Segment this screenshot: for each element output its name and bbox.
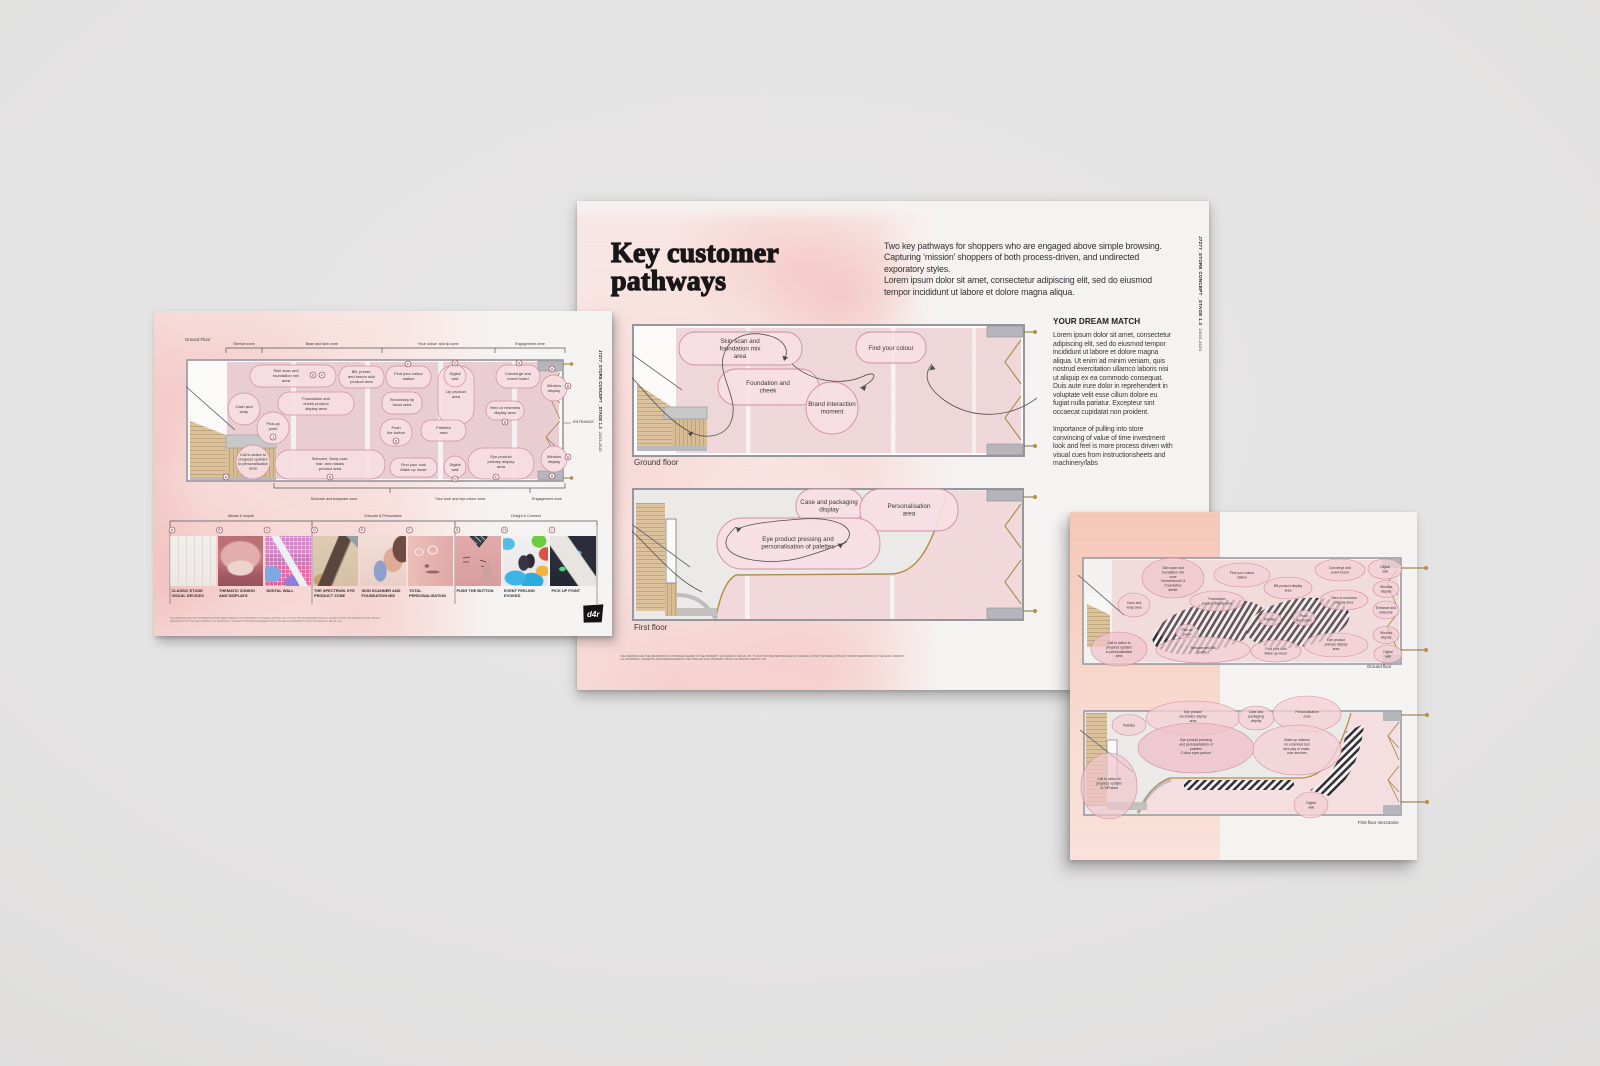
svg-text:product: product	[1197, 650, 1208, 654]
svg-text:Skincare and BB: Skincare and BB	[1190, 646, 1216, 650]
svg-text:‘Colour eyes parlour’: ‘Colour eyes parlour’	[1180, 751, 1211, 755]
svg-text:Find your colour: Find your colour	[1230, 571, 1255, 575]
svg-text:to personalisation: to personalisation	[1106, 650, 1133, 654]
svg-text:wrap area: wrap area	[1126, 605, 1141, 609]
svg-text:area: area	[1190, 719, 1197, 723]
svg-text:Skin scan and: Skin scan and	[1162, 566, 1183, 570]
svg-text:primary display: primary display	[1325, 642, 1348, 646]
svg-text:area: area	[734, 353, 747, 360]
svg-text:Hero or newness: Hero or newness	[1331, 596, 1357, 600]
svg-text:secondary display: secondary display	[1179, 714, 1206, 718]
svg-text:d4r: d4r	[587, 610, 600, 619]
svg-text:Brand interaction: Brand interaction	[808, 401, 856, 408]
svg-text:display: display	[1251, 719, 1262, 723]
svg-text:Make up muse’: Make up muse’	[1265, 651, 1288, 655]
svg-text:display area: display area	[1335, 600, 1353, 604]
svg-text:zone: zone	[1303, 714, 1310, 718]
svg-text:Foundation: Foundation	[1209, 597, 1226, 601]
svg-text:point: point	[1183, 632, 1190, 636]
svg-text:Personalisation: Personalisation	[1295, 710, 1318, 714]
svg-text:Skin scan and: Skin scan and	[720, 338, 760, 345]
svg-text:wall: wall	[1385, 654, 1391, 658]
svg-text:progress upstairs: progress upstairs	[1106, 645, 1132, 649]
svg-text:display: display	[819, 507, 839, 514]
svg-text:welcome: welcome	[1379, 610, 1392, 614]
svg-text:Push: Push	[1300, 614, 1308, 618]
svg-text:Foundation: Foundation	[1165, 584, 1182, 588]
svg-text:Window: Window	[1380, 631, 1393, 635]
svg-text:the button: the button	[1296, 618, 1311, 622]
svg-text:palettes: palettes	[1190, 747, 1202, 751]
svg-text:Pick up: Pick up	[1181, 628, 1192, 632]
svg-text:Eye product pressing and: Eye product pressing and	[762, 536, 834, 543]
svg-text:for extended test: for extended test	[1284, 742, 1309, 746]
svg-text:area: area	[1116, 654, 1123, 658]
svg-text:area: area	[903, 511, 916, 518]
svg-text:station: station	[1237, 575, 1247, 579]
svg-text:Palettes: Palettes	[1123, 723, 1136, 727]
svg-text:area: area	[1285, 588, 1292, 592]
svg-text:Eye product: Eye product	[1184, 710, 1202, 714]
svg-text:and play or make-: and play or make-	[1283, 747, 1310, 751]
svg-text:Case and: Case and	[1249, 710, 1264, 714]
svg-text:display: display	[1381, 635, 1392, 639]
svg-text:Call to action to: Call to action to	[1107, 641, 1130, 645]
svg-text:Digital: Digital	[1380, 565, 1390, 569]
svg-text:cheek: cheek	[760, 388, 778, 395]
svg-text:moment: moment	[821, 409, 844, 416]
svg-text:Eye product: Eye product	[1327, 638, 1345, 642]
svg-text:Palettes: Palettes	[1264, 617, 1277, 621]
svg-text:to VIP area: to VIP area	[1101, 786, 1118, 790]
svg-text:zone: zone	[1169, 575, 1176, 579]
svg-text:wall: wall	[1382, 569, 1388, 573]
svg-text:foundation mix: foundation mix	[1162, 570, 1184, 574]
svg-text:Entrance and: Entrance and	[1376, 606, 1396, 610]
svg-text:over services: over services	[1287, 751, 1307, 755]
svg-text:Personalisation: Personalisation	[887, 503, 931, 510]
svg-text:Call to action to: Call to action to	[1097, 777, 1120, 781]
svg-text:Foundation and: Foundation and	[746, 380, 790, 387]
svg-text:Window: Window	[1380, 585, 1393, 589]
svg-text:product display area: product display area	[1202, 601, 1233, 605]
svg-text:Find your colour: Find your colour	[868, 345, 913, 352]
svg-text:Digital: Digital	[1383, 650, 1393, 654]
svg-text:Find your look: Find your look	[1265, 647, 1287, 651]
svg-text:area: area	[1333, 647, 1340, 651]
svg-text:Case and packaging: Case and packaging	[800, 499, 858, 506]
svg-text:progress upstairs: progress upstairs	[1096, 781, 1122, 785]
svg-text:Make up stations: Make up stations	[1284, 738, 1310, 742]
svg-text:BB product display: BB product display	[1274, 584, 1303, 588]
svg-text:and personalisation of: and personalisation of	[1179, 742, 1212, 746]
svg-text:wall: wall	[1308, 805, 1314, 809]
svg-text:packaging: packaging	[1248, 714, 1264, 718]
svg-text:atelier: atelier	[1168, 588, 1178, 592]
svg-text:personalisation of palettes: personalisation of palettes	[761, 544, 834, 551]
svg-text:event board: event board	[1331, 570, 1349, 574]
svg-text:display: display	[1381, 589, 1392, 593]
svg-text:Eye product pressing: Eye product pressing	[1180, 738, 1212, 742]
svg-text:Concierge and: Concierge and	[1329, 566, 1351, 570]
svg-text:Digital: Digital	[1306, 801, 1316, 805]
svg-text:Cash and: Cash and	[1127, 601, 1142, 605]
svg-text:‘Wonderbooth’ &: ‘Wonderbooth’ &	[1161, 579, 1187, 583]
